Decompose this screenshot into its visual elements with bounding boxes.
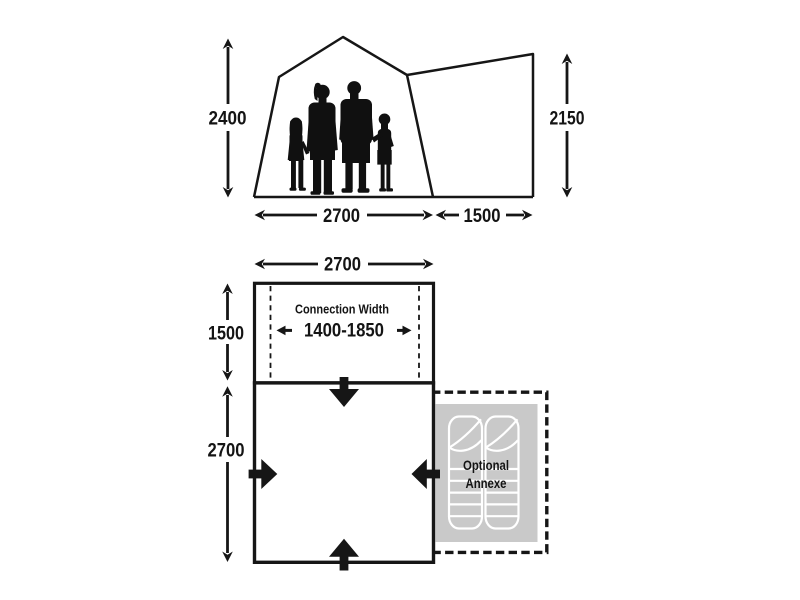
svg-text:2700: 2700 [324, 254, 361, 276]
svg-text:2400: 2400 [209, 108, 247, 130]
svg-text:Connection Width: Connection Width [295, 303, 389, 317]
svg-text:1500: 1500 [208, 323, 244, 345]
svg-text:2150: 2150 [550, 108, 585, 130]
svg-text:Optional: Optional [463, 457, 509, 473]
svg-text:2700: 2700 [208, 440, 245, 462]
svg-text:1400-1850: 1400-1850 [304, 321, 384, 342]
svg-text:Annexe: Annexe [466, 475, 507, 491]
svg-text:1500: 1500 [464, 205, 501, 227]
svg-text:2700: 2700 [323, 205, 360, 227]
